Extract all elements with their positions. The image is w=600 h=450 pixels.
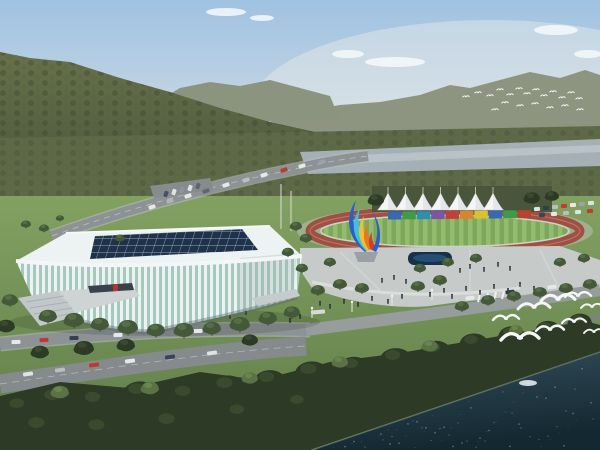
sparkle: [556, 426, 557, 427]
tree-highlight: [234, 318, 243, 324]
cloud: [250, 15, 274, 21]
car: [570, 203, 576, 208]
person: [509, 267, 510, 270]
person: [401, 295, 402, 298]
tree-highlight: [10, 398, 24, 408]
bird-body: [504, 102, 506, 103]
tree-highlight: [54, 387, 62, 392]
bird-body: [494, 109, 496, 110]
tree-highlight: [585, 280, 591, 284]
tree-highlight: [313, 286, 319, 290]
sparkle: [442, 440, 443, 441]
car: [193, 329, 202, 333]
person: [393, 276, 394, 279]
person: [479, 291, 480, 294]
tree-highlight: [178, 324, 187, 330]
tree-highlight: [302, 234, 307, 238]
aerial-rendering: [0, 0, 600, 450]
grandstand-wall-segment: [489, 210, 502, 218]
tree-highlight: [425, 341, 432, 346]
person-head: [493, 284, 495, 286]
person: [429, 293, 430, 296]
bird-body: [572, 321, 576, 323]
car: [563, 211, 569, 216]
sparkle: [496, 421, 497, 422]
sparkle: [398, 442, 400, 444]
car: [552, 205, 558, 210]
sparkle: [470, 407, 472, 409]
tree-highlight: [259, 372, 274, 382]
sparkle: [353, 441, 355, 443]
sparkle: [382, 439, 383, 440]
cloud: [534, 25, 578, 35]
person-head: [483, 267, 485, 269]
person: [329, 305, 330, 308]
entrance-red-accent: [113, 284, 118, 291]
tree-highlight: [357, 284, 363, 288]
sparkle: [550, 440, 551, 441]
bird-body: [576, 295, 580, 297]
sparkle: [547, 435, 548, 436]
tree-highlight: [290, 395, 304, 404]
person-head: [459, 268, 461, 270]
bird-body: [509, 94, 511, 95]
tree-highlight: [385, 350, 400, 360]
sparkle: [577, 419, 578, 420]
bird-body: [499, 89, 501, 90]
tree-highlight: [292, 222, 297, 226]
tree-highlight: [85, 392, 100, 402]
sparkle: [520, 427, 521, 428]
tree-highlight: [175, 386, 190, 396]
car: [543, 206, 549, 211]
tree-highlight: [444, 258, 449, 262]
person-head: [387, 299, 389, 301]
sparkle: [443, 426, 445, 428]
tree-highlight: [472, 254, 477, 258]
sparkle: [487, 431, 488, 432]
tree-highlight: [335, 357, 342, 362]
car: [588, 201, 594, 206]
grandstand-wall-segment: [417, 211, 430, 219]
bird-body: [555, 298, 560, 301]
sparkle: [581, 368, 583, 370]
tree-highlight: [245, 373, 252, 378]
sparkle: [469, 401, 470, 402]
person-head: [343, 299, 345, 301]
bird-body: [552, 91, 554, 92]
bird-body: [564, 105, 566, 106]
tree-highlight: [230, 404, 244, 414]
sparkle: [536, 396, 538, 398]
person: [319, 302, 320, 305]
bird-body: [592, 331, 595, 333]
person: [451, 295, 452, 298]
tree-highlight: [206, 323, 214, 328]
tree-highlight: [300, 363, 316, 374]
tree-highlight: [413, 282, 419, 286]
person-head: [329, 304, 331, 306]
sparkle: [461, 442, 463, 444]
sparkle: [475, 447, 476, 448]
person-head: [469, 264, 471, 266]
tree-highlight: [457, 302, 463, 306]
car: [113, 333, 122, 337]
sparkle: [478, 441, 479, 442]
sparkle: [538, 439, 539, 440]
person-head: [533, 286, 535, 288]
person-head: [393, 275, 395, 277]
sparkle: [425, 427, 427, 429]
person: [497, 263, 498, 266]
tree-highlight: [28, 417, 44, 428]
tree-highlight: [335, 280, 341, 284]
cloud: [365, 57, 425, 67]
sparkle: [592, 418, 593, 419]
grandstand-wall-segment: [402, 211, 415, 219]
sparkle: [352, 443, 353, 444]
sparkle: [568, 426, 569, 427]
tree-highlight: [416, 264, 421, 268]
person-head: [519, 282, 521, 284]
person: [493, 285, 494, 288]
person: [469, 265, 470, 268]
bird-body: [535, 89, 537, 90]
grandstand-wall-segment: [460, 211, 473, 219]
person-head: [401, 294, 403, 296]
tree-highlight: [68, 314, 77, 320]
grandstand-wall-segment: [446, 211, 459, 219]
grandstand-wall-segment: [388, 212, 401, 220]
sparkle: [529, 436, 530, 437]
sparkle: [559, 433, 560, 434]
tree-highlight: [561, 284, 567, 288]
sparkle: [574, 389, 575, 390]
sparkle: [448, 434, 449, 435]
tree-highlight: [556, 258, 561, 262]
water-reflection-spot: [519, 380, 537, 386]
bird-body: [543, 95, 545, 96]
sparkle: [424, 431, 425, 432]
sparkle: [380, 433, 382, 435]
bird-body: [534, 103, 536, 104]
person: [381, 279, 382, 282]
tree-highlight: [117, 235, 122, 238]
bird-body: [519, 105, 521, 106]
sparkle: [488, 430, 490, 432]
sparkle: [451, 427, 452, 428]
sparkle: [412, 420, 413, 421]
sparkle: [505, 412, 506, 413]
car: [11, 340, 20, 344]
tree-highlight: [464, 335, 478, 344]
person-head: [509, 266, 511, 268]
tree-highlight: [326, 258, 331, 262]
bird-body: [465, 96, 467, 97]
person-head: [507, 288, 509, 290]
grandstand-wall-segment: [518, 210, 531, 218]
car: [561, 204, 567, 209]
sparkle: [407, 423, 409, 425]
scene-svg: [0, 0, 600, 450]
bird-body: [561, 97, 563, 98]
tree-highlight: [144, 383, 152, 388]
person: [371, 297, 372, 300]
sparkle: [541, 446, 542, 447]
car: [575, 210, 581, 215]
sparkle: [389, 443, 391, 445]
car: [39, 338, 48, 342]
tree-highlight: [41, 225, 46, 228]
person-head: [429, 292, 431, 294]
tree-highlight: [527, 193, 534, 198]
sparkle: [433, 416, 434, 417]
sparkle: [388, 429, 389, 430]
bird-body: [531, 306, 536, 309]
person: [357, 303, 358, 306]
sparkle: [554, 386, 556, 388]
sparkle: [397, 429, 398, 430]
person: [443, 289, 444, 292]
sparkle: [514, 402, 515, 403]
person-head: [479, 290, 481, 292]
tree-highlight: [150, 325, 158, 330]
sparkle: [406, 435, 407, 436]
cloud: [332, 50, 364, 58]
tree-highlight: [94, 319, 102, 324]
tree-highlight: [580, 254, 585, 258]
tree-highlight: [509, 292, 515, 296]
sparkle: [484, 440, 485, 441]
sparkle: [509, 445, 511, 447]
cloud: [206, 8, 246, 16]
tree-highlight: [216, 377, 232, 388]
sparkle: [416, 421, 418, 423]
person: [465, 287, 466, 290]
tree-highlight: [23, 221, 28, 224]
bird-body: [518, 88, 520, 89]
sparkle: [590, 402, 592, 404]
sparkle: [545, 397, 547, 399]
bird-body: [570, 92, 572, 93]
tree-highlight: [298, 264, 303, 268]
sparkle: [572, 413, 574, 415]
bird-body: [548, 328, 552, 331]
bird-body: [526, 93, 528, 94]
person-head: [371, 296, 373, 298]
person-head: [443, 288, 445, 290]
car: [69, 336, 78, 340]
tree-highlight: [57, 216, 61, 218]
bird-body: [549, 107, 551, 108]
bird-body: [579, 109, 581, 110]
tree-highlight: [284, 248, 289, 252]
tree-highlight: [122, 321, 131, 327]
bird-body: [489, 95, 491, 96]
tree-highlight: [245, 335, 252, 340]
tree-highlight: [435, 276, 441, 280]
person: [519, 283, 520, 286]
sparkle: [364, 446, 365, 447]
sculpture-pedestal: [354, 252, 378, 262]
sparkle: [434, 432, 436, 434]
grandstand-wall-segment: [431, 211, 444, 219]
bird-body: [517, 336, 523, 339]
sparkle: [493, 422, 494, 423]
tree-highlight: [371, 195, 378, 200]
tree-highlight: [547, 192, 553, 196]
grandstand-wall-segment: [474, 211, 487, 219]
tree-highlight: [262, 313, 270, 318]
person-head: [357, 302, 359, 304]
sparkle: [334, 447, 335, 448]
tree-highlight: [34, 347, 42, 352]
sparkle: [523, 392, 524, 393]
car: [539, 213, 545, 218]
sparkle: [457, 422, 458, 423]
person-head: [405, 279, 407, 281]
sparkle: [518, 423, 520, 425]
car: [579, 202, 585, 207]
car: [587, 209, 593, 214]
person: [343, 300, 344, 303]
tree-highlight: [511, 326, 517, 330]
sparkle: [466, 441, 467, 442]
sparkle: [479, 437, 481, 439]
tree-highlight: [120, 340, 128, 345]
bird-body: [477, 92, 479, 93]
sparkle: [344, 446, 346, 448]
sparkle: [379, 436, 380, 437]
person-head: [381, 278, 383, 280]
car: [534, 207, 540, 212]
sparkle: [361, 441, 362, 442]
person-head: [465, 286, 467, 288]
tree-highlight: [287, 307, 294, 312]
sparkle: [415, 447, 416, 448]
grandstand-wall-segment: [503, 210, 516, 218]
tree-highlight: [42, 311, 50, 316]
car: [551, 212, 557, 217]
sparkle: [421, 427, 422, 428]
tree-highlight: [78, 342, 87, 348]
person: [405, 280, 406, 283]
sparkle: [430, 440, 431, 441]
person-head: [497, 262, 499, 264]
tree-highlight: [88, 419, 104, 430]
bird-body: [578, 98, 580, 99]
person: [483, 268, 484, 271]
bird-body: [504, 318, 508, 320]
sparkle: [511, 412, 512, 413]
sparkle: [460, 414, 461, 415]
sparkle: [452, 446, 454, 448]
sparkle: [502, 391, 503, 392]
tree-highlight: [5, 295, 12, 300]
person: [459, 269, 460, 272]
sparkle: [439, 428, 440, 429]
fountain-water: [413, 254, 447, 262]
tree-highlight: [535, 288, 541, 292]
tree-highlight: [158, 413, 174, 424]
tree-highlight: [0, 321, 8, 326]
tree-highlight: [483, 296, 489, 300]
person-head: [451, 294, 453, 296]
bird-body: [590, 306, 594, 308]
sparkle: [565, 410, 566, 411]
person: [387, 300, 388, 303]
person-head: [319, 301, 321, 303]
sparkle: [391, 436, 392, 437]
sparkle: [563, 445, 565, 447]
